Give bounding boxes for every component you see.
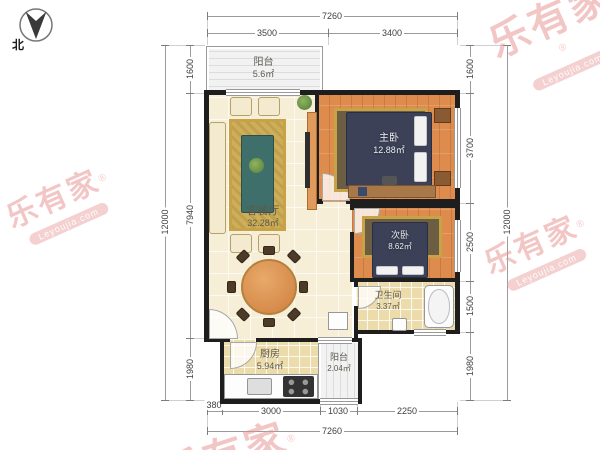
dining-table: [241, 259, 297, 315]
dim-bottom-seg2: 3000: [259, 406, 283, 416]
watermark-brand: 乐有家: [157, 416, 293, 450]
dimension-tick: [357, 407, 358, 415]
watermark: 乐有家® Leyoujia.com: [0, 153, 120, 253]
watermark-brand: 乐有家: [483, 0, 600, 67]
dimension-tick: [466, 93, 474, 94]
window: [454, 108, 461, 188]
hall-cabinet: [328, 312, 348, 330]
dining-chair: [227, 281, 236, 293]
watermark: 乐有家® Leyoujia.com: [476, 199, 598, 299]
dimension-line: [470, 45, 471, 400]
wall: [350, 232, 354, 282]
dim-bottom-seg3: 1030: [326, 406, 350, 416]
nightstand: [434, 108, 451, 123]
label-living: 客餐厅 32.28㎡: [210, 204, 316, 230]
watermark-reg: ®: [286, 433, 296, 446]
dining-chair: [263, 318, 275, 327]
dimension-tick: [466, 281, 474, 282]
room-name: 主卧: [346, 132, 432, 145]
dimension-tick: [466, 203, 474, 204]
watermark-brand: 乐有家: [2, 164, 106, 234]
dimension-tick: [457, 407, 458, 415]
dim-top-total: 7260: [320, 11, 344, 21]
dim-left-seg3: 1980: [185, 357, 195, 381]
north-indicator: 北: [10, 4, 62, 56]
watermark-brand: 乐有家: [480, 210, 584, 280]
dim-top-seg2: 3400: [380, 28, 404, 38]
room-name: 阳台: [206, 56, 321, 69]
washbasin: [392, 318, 407, 331]
dim-right-seg5: 1980: [465, 354, 475, 378]
room-area: 3.37㎡: [356, 302, 420, 312]
room-name: 次卧: [372, 230, 428, 242]
coffee-table: [241, 135, 274, 213]
dimension-tick: [186, 45, 194, 46]
dimension-tick: [207, 29, 208, 37]
nightstand: [434, 171, 451, 186]
dimension-tick: [457, 29, 458, 37]
dimension-tick: [466, 45, 474, 46]
watermark-reg: ®: [575, 218, 586, 231]
dimension-tick: [503, 45, 511, 46]
dining-chair: [299, 281, 308, 293]
dimension-tick: [457, 12, 458, 20]
room-area: 12.88㎡: [346, 145, 432, 157]
room-name: 客餐厅: [210, 204, 316, 218]
stove: [283, 376, 314, 397]
watermark-reg: ®: [557, 42, 568, 55]
label-master: 主卧 12.88㎡: [346, 132, 432, 157]
window: [226, 89, 300, 96]
dimension-tick: [503, 400, 511, 401]
dimension-tick: [186, 93, 194, 94]
label-balcony-top: 阳台 5.6㎡: [206, 56, 321, 81]
desk-chair: [382, 176, 397, 185]
north-label: 北: [12, 36, 24, 53]
watermark: 乐有家® Leyoujia.com: [478, 0, 600, 103]
room-area: 32.28㎡: [210, 218, 316, 230]
label-kitchen: 厨房 5.94㎡: [222, 348, 318, 373]
watermark-domain: Leyoujia.com: [27, 201, 110, 247]
window: [318, 337, 352, 344]
wall: [446, 330, 460, 334]
dimension-tick: [466, 400, 474, 401]
dining-chair: [263, 246, 275, 255]
dimension-tick: [466, 332, 474, 333]
watermark: 乐有家® Leyoujia.com: [154, 403, 307, 450]
tv: [305, 132, 310, 188]
dim-right-total: 12000: [502, 207, 512, 236]
room-area: 8.62㎡: [372, 242, 428, 252]
dim-right-seg1: 1600: [465, 57, 475, 81]
bathtub-basin: [428, 289, 450, 324]
dim-top-seg1: 3500: [255, 28, 279, 38]
label-second: 次卧 8.62㎡: [372, 230, 428, 252]
watermark-domain: Leyoujia.com: [531, 47, 600, 93]
room-area: 5.6㎡: [206, 69, 321, 81]
dimension-line: [207, 33, 457, 34]
armchair: [258, 97, 280, 116]
room-area: 2.04㎡: [318, 364, 360, 374]
label-balcony-bottom: 阳台 2.04㎡: [318, 352, 360, 374]
label-bathroom: 卫生间 3.37㎡: [356, 290, 420, 312]
pillow: [402, 266, 424, 275]
floorplan-canvas: 北 7260 3500 3400 380 3000 1030 2250 7260…: [0, 0, 600, 450]
coffee-table-plant: [249, 158, 264, 173]
room-area: 5.94㎡: [222, 361, 318, 373]
dim-bottom-total: 7260: [320, 426, 344, 436]
wall: [220, 399, 320, 404]
dim-left-seg1: 1600: [185, 57, 195, 81]
dim-right-seg3: 2500: [465, 230, 475, 254]
wall: [256, 338, 318, 342]
dimension-tick: [161, 400, 169, 401]
pillow: [376, 266, 398, 275]
dim-left-total: 12000: [160, 207, 170, 236]
dimension-tick: [320, 407, 321, 415]
plant: [297, 95, 312, 110]
room-name: 阳台: [318, 352, 360, 364]
dimension-tick: [207, 427, 208, 435]
armchair: [230, 97, 252, 116]
wall: [350, 278, 460, 282]
window: [454, 220, 461, 272]
dim-left-seg2: 7940: [185, 203, 195, 227]
window: [320, 398, 358, 405]
laptop: [358, 187, 367, 196]
wall: [314, 90, 460, 95]
dimension-tick: [457, 427, 458, 435]
dimension-tick: [186, 338, 194, 339]
dimension-tick: [186, 400, 194, 401]
dim-bottom-seg4: 2250: [395, 406, 419, 416]
dimension-tick: [207, 12, 208, 20]
room-name: 卫生间: [356, 290, 420, 302]
window: [414, 329, 446, 336]
kitchen-sink: [247, 378, 272, 395]
watermark-reg: ®: [97, 172, 108, 185]
room-name: 厨房: [222, 348, 318, 361]
dimension-tick: [328, 29, 329, 37]
dimension-tick: [161, 45, 169, 46]
dim-right-seg2: 3700: [465, 136, 475, 160]
watermark-domain: Leyoujia.com: [505, 247, 588, 293]
dim-right-seg4: 1500: [465, 294, 475, 318]
